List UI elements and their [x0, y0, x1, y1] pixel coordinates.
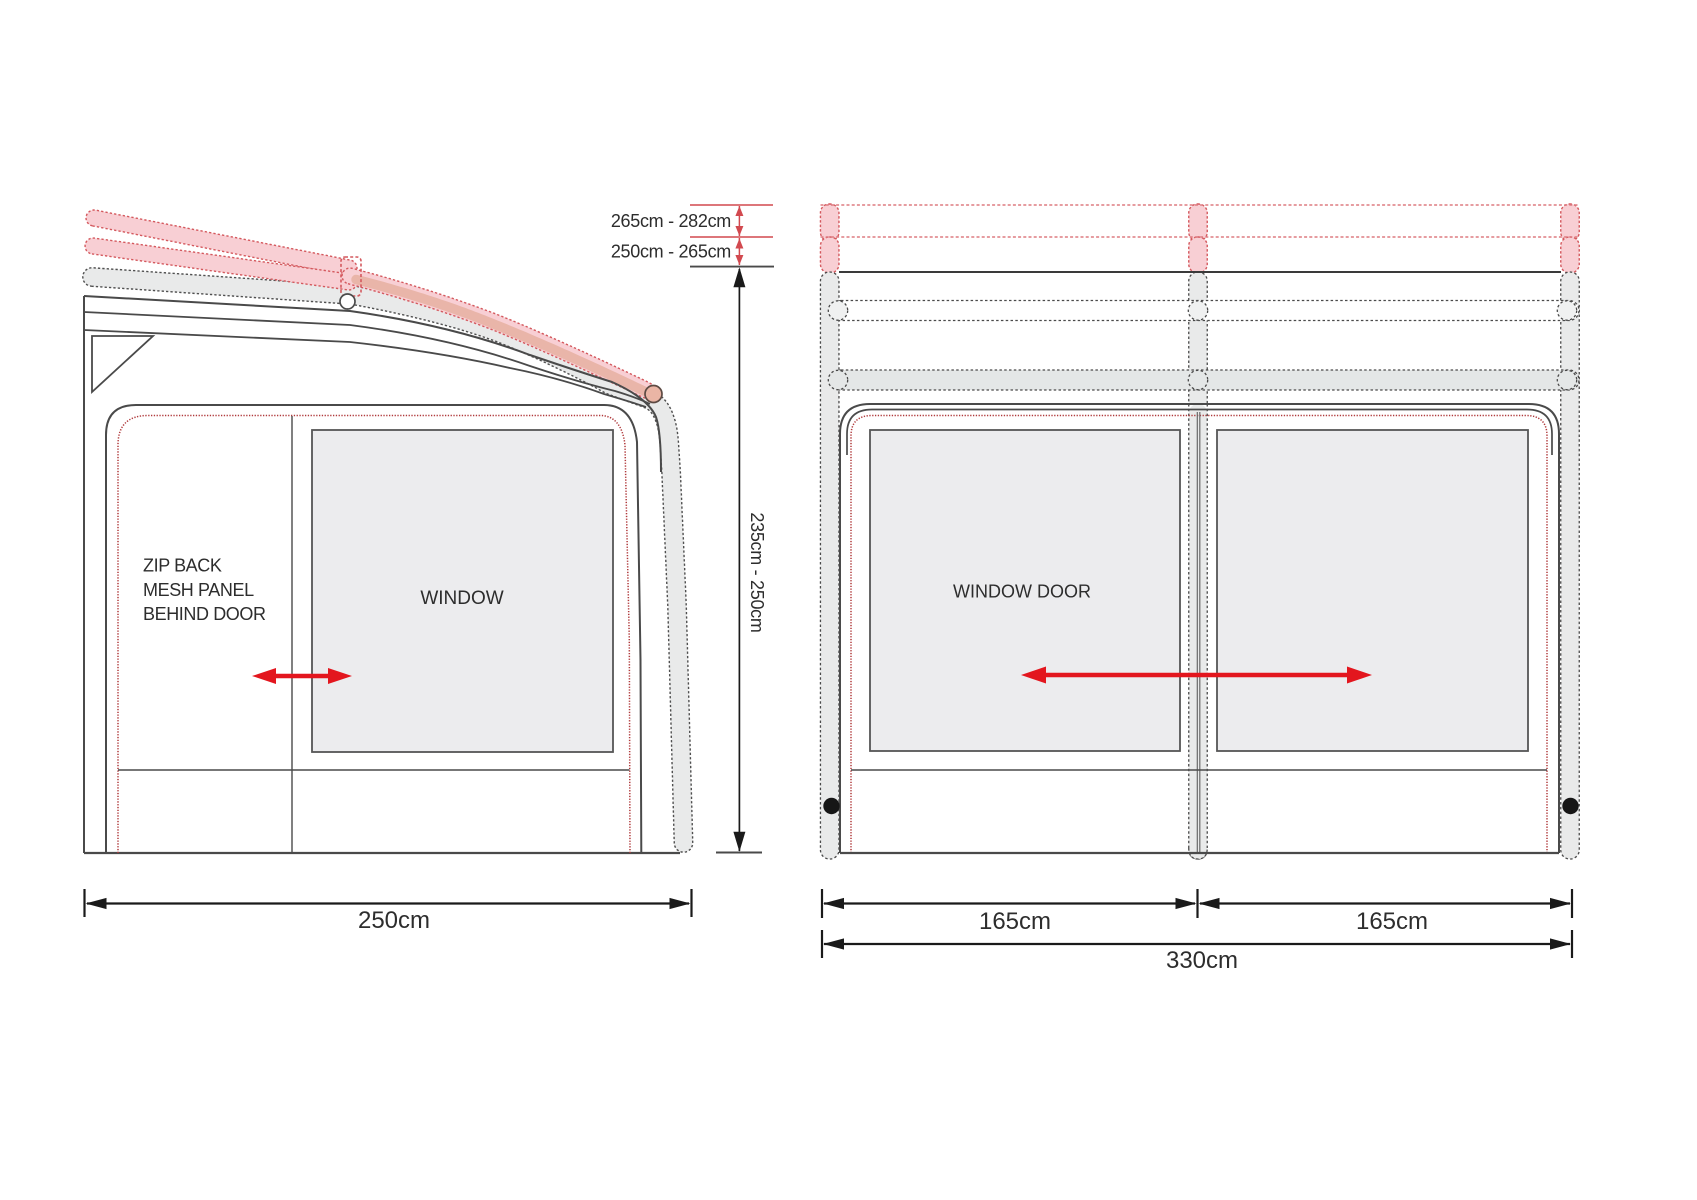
svg-text:165cm: 165cm — [979, 908, 1051, 935]
svg-text:265cm - 282cm: 265cm - 282cm — [611, 211, 731, 231]
svg-text:165cm: 165cm — [1356, 908, 1428, 935]
svg-text:250cm: 250cm — [358, 907, 430, 934]
svg-text:250cm - 265cm: 250cm - 265cm — [611, 242, 731, 262]
svg-text:WINDOW: WINDOW — [420, 588, 503, 609]
svg-text:BEHIND DOOR: BEHIND DOOR — [143, 604, 266, 624]
svg-text:MESH PANEL: MESH PANEL — [143, 580, 254, 600]
svg-text:WINDOW DOOR: WINDOW DOOR — [953, 582, 1091, 602]
svg-text:330cm: 330cm — [1166, 947, 1238, 974]
svg-text:235cm - 250cm: 235cm - 250cm — [747, 512, 767, 632]
svg-text:ZIP BACK: ZIP BACK — [143, 556, 222, 576]
